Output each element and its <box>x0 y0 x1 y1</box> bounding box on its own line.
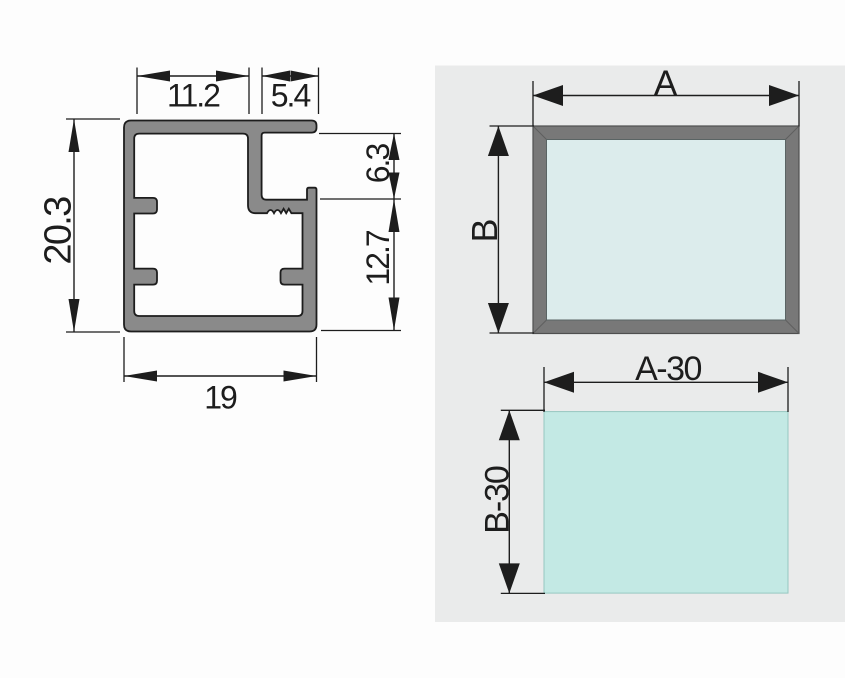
svg-text:19: 19 <box>204 380 237 416</box>
svg-text:20.3: 20.3 <box>38 197 80 265</box>
svg-text:B-30: B-30 <box>479 466 517 534</box>
svg-text:11.2: 11.2 <box>167 78 220 114</box>
svg-text:A: A <box>654 64 678 103</box>
svg-text:5.4: 5.4 <box>271 78 311 114</box>
svg-text:6.3: 6.3 <box>360 144 396 184</box>
svg-text:A-30: A-30 <box>635 350 701 388</box>
svg-text:12.7: 12.7 <box>360 230 396 285</box>
svg-text:B: B <box>464 218 505 242</box>
